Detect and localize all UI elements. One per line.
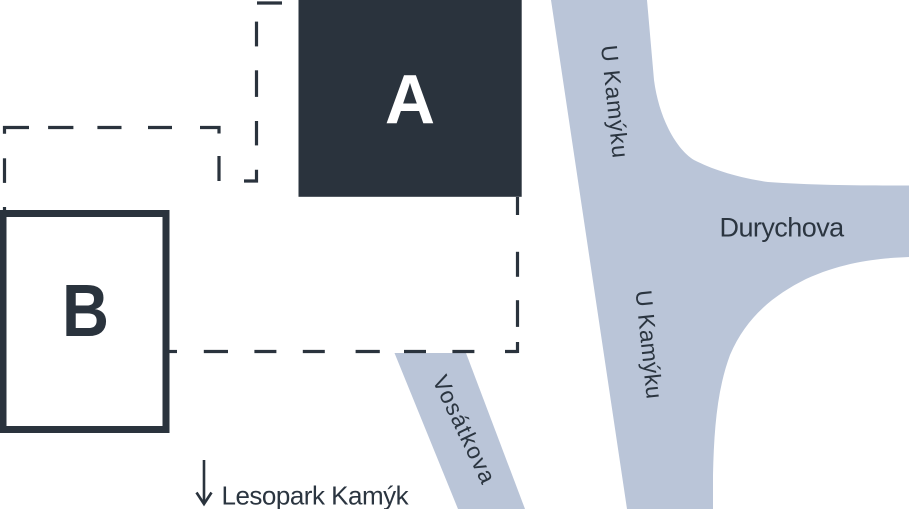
svg-text:A: A: [385, 61, 435, 139]
svg-text:Durychova: Durychova: [720, 213, 846, 243]
svg-text:B: B: [62, 269, 109, 352]
svg-text:Lesopark Kamýk: Lesopark Kamýk: [222, 481, 410, 509]
